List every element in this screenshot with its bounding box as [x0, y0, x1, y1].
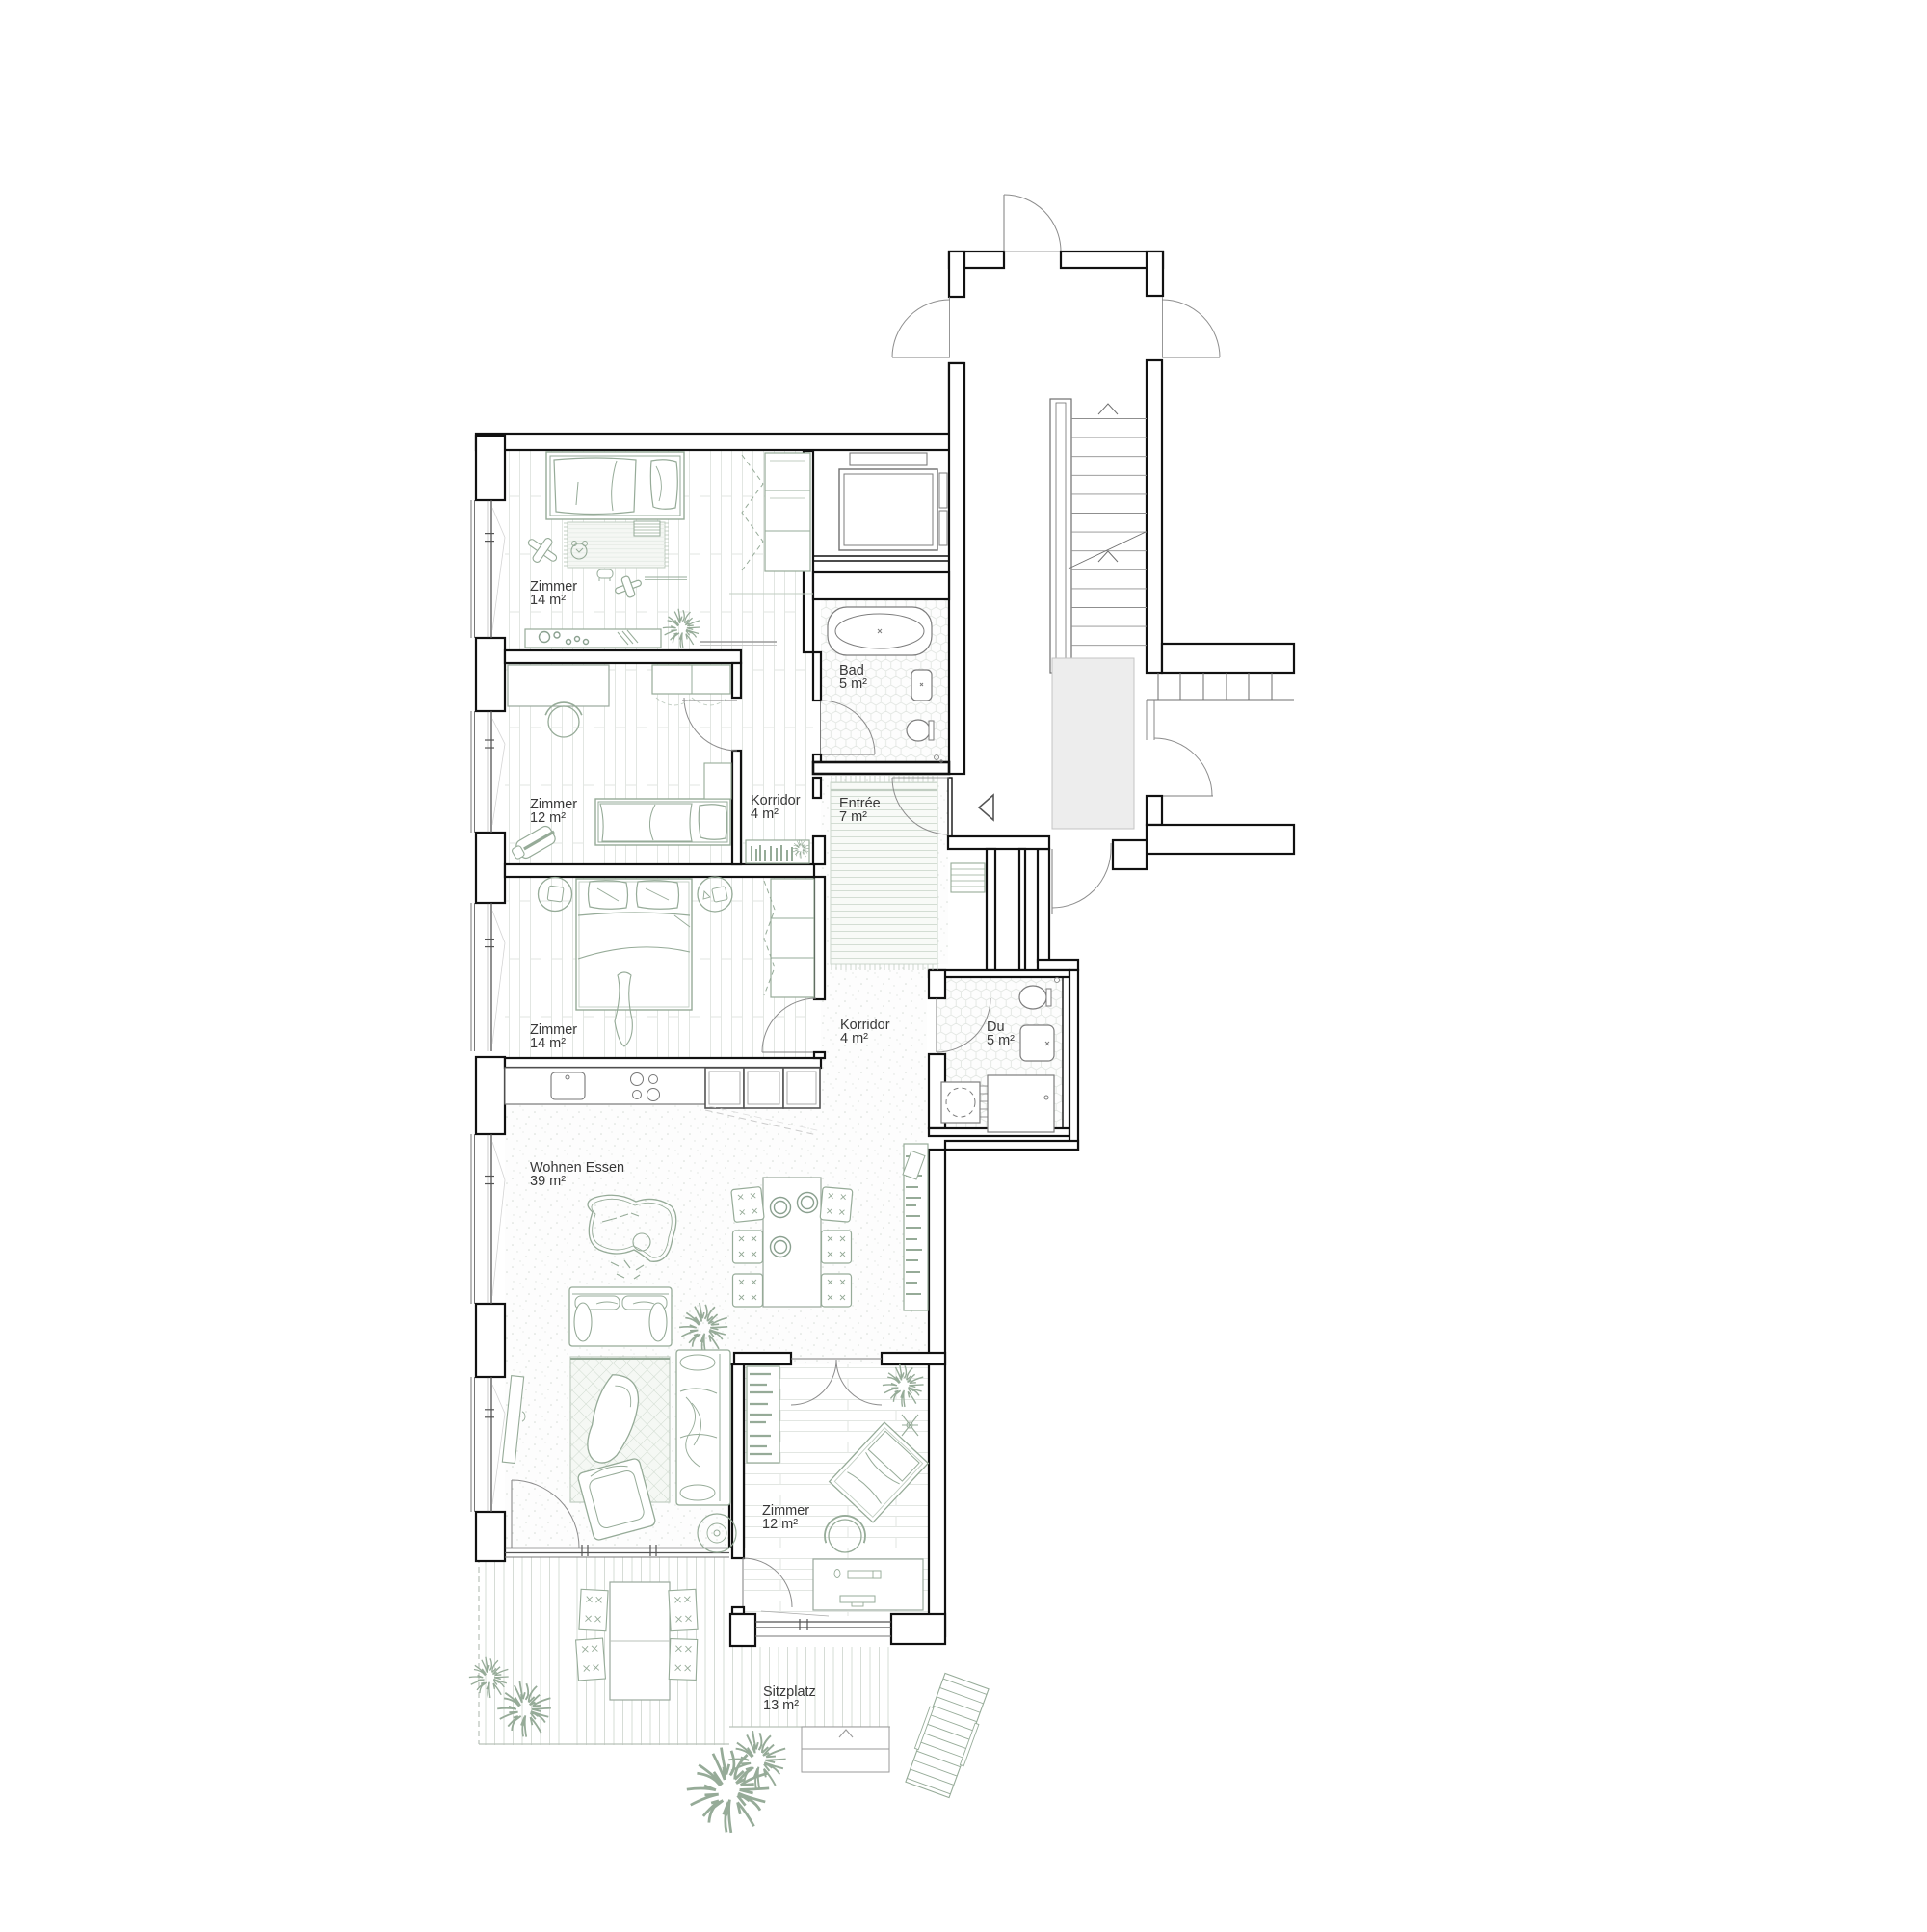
svg-text:13 m²: 13 m² [763, 1698, 799, 1713]
svg-text:5 m²: 5 m² [987, 1033, 1015, 1048]
svg-text:14 m²: 14 m² [530, 593, 566, 608]
svg-text:4 m²: 4 m² [751, 807, 779, 822]
svg-text:12 m²: 12 m² [530, 810, 566, 826]
svg-text:14 m²: 14 m² [530, 1036, 566, 1051]
svg-text:4 m²: 4 m² [840, 1031, 868, 1046]
svg-text:7 m²: 7 m² [839, 809, 867, 825]
svg-text:5 m²: 5 m² [839, 676, 867, 692]
svg-text:12 m²: 12 m² [762, 1517, 798, 1532]
svg-text:39 m²: 39 m² [530, 1174, 566, 1189]
